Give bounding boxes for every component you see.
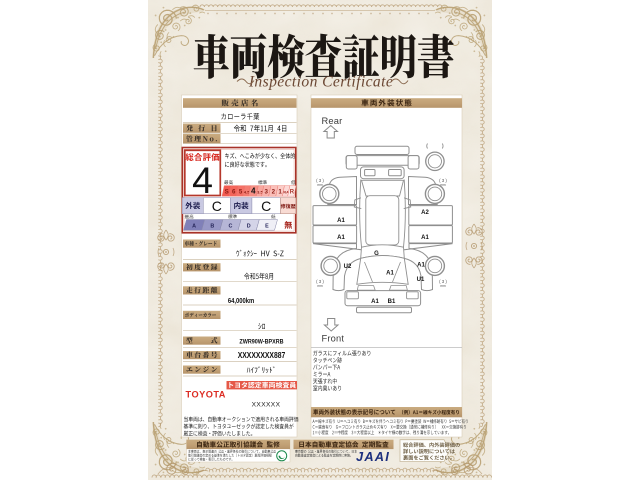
svg-text:E: E — [265, 223, 269, 229]
svg-text:mm: mm — [317, 284, 323, 288]
svg-text:A1: A1 — [417, 263, 425, 269]
svg-text:B1: B1 — [388, 299, 396, 305]
svg-text:5: 5 — [239, 189, 243, 196]
svg-text:A1: A1 — [386, 270, 394, 276]
svg-text:U2: U2 — [344, 264, 352, 270]
svg-text:A2: A2 — [421, 210, 429, 216]
svg-text:B: B — [210, 223, 214, 229]
svg-text:1: 1 — [278, 189, 282, 196]
svg-text:S: S — [225, 189, 229, 196]
svg-text:4: 4 — [251, 187, 256, 196]
svg-text:A1: A1 — [421, 235, 429, 241]
svg-text:4: 4 — [192, 159, 213, 201]
svg-text:D: D — [247, 223, 251, 229]
svg-text:Front: Front — [322, 334, 345, 344]
svg-text:2: 2 — [272, 189, 276, 196]
svg-text:mm: mm — [440, 284, 446, 288]
svg-text:U1: U1 — [417, 277, 425, 283]
svg-text:mm: mm — [317, 183, 323, 187]
svg-text:R: R — [290, 190, 295, 196]
svg-text:C: C — [261, 198, 271, 214]
svg-text:Rear: Rear — [322, 116, 343, 126]
svg-text:C: C — [229, 223, 233, 229]
svg-text:A1: A1 — [337, 218, 345, 224]
svg-text:C: C — [212, 198, 222, 214]
svg-text:64,000km: 64,000km — [228, 298, 255, 306]
svg-text:JAAI: JAAI — [356, 449, 390, 464]
svg-text:Inspection Certificate: Inspection Certificate — [248, 74, 393, 91]
svg-text:G: G — [374, 251, 379, 257]
svg-text:XXXXXX: XXXXXX — [252, 402, 281, 409]
svg-text:A: A — [192, 223, 196, 229]
svg-text:TOYOTA: TOYOTA — [186, 389, 226, 399]
svg-text:6: 6 — [232, 189, 236, 196]
svg-text:ZWR90W-BPXRB: ZWR90W-BPXRB — [239, 338, 284, 346]
svg-text:A1: A1 — [337, 235, 345, 241]
svg-text:XXXXXXXX887: XXXXXXXX887 — [238, 351, 286, 361]
svg-text:A1: A1 — [371, 299, 379, 305]
svg-text:3: 3 — [265, 189, 269, 196]
